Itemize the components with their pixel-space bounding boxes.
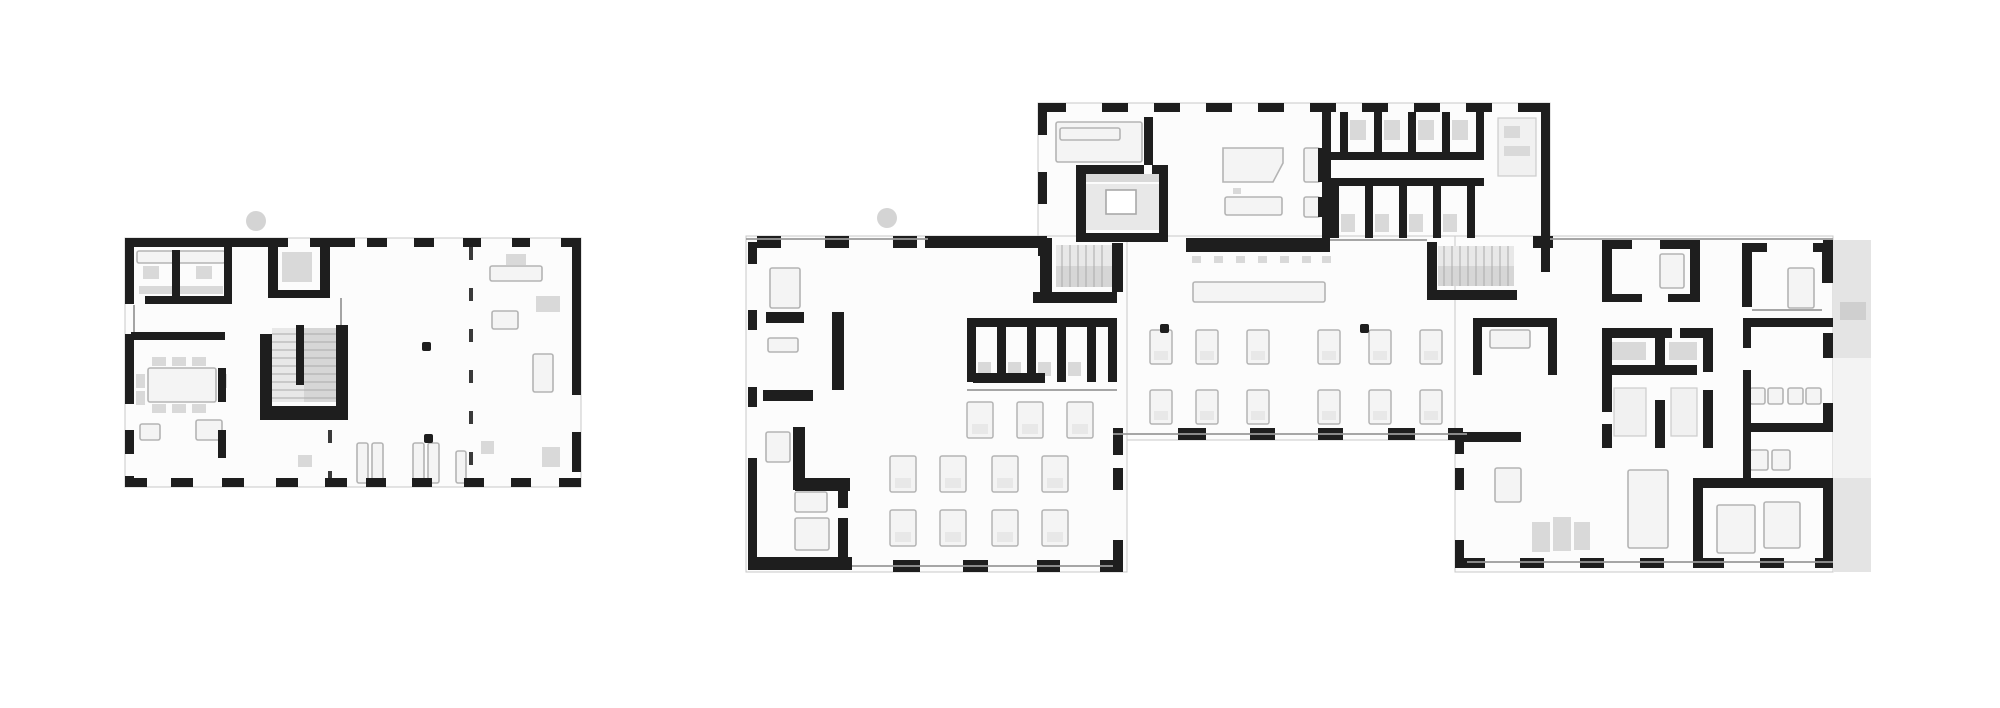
wall-segment	[412, 478, 432, 487]
outline-furniture	[1788, 388, 1803, 404]
outline-furniture	[490, 266, 542, 281]
wall-segment	[1655, 400, 1665, 448]
wall-segment	[1602, 294, 1642, 302]
seat-unit-inner	[1251, 411, 1265, 420]
seat-unit-inner	[1373, 351, 1387, 360]
wall-segment	[748, 387, 757, 407]
wall-segment	[1463, 432, 1521, 442]
wall-segment	[1362, 103, 1388, 112]
wall-segment	[1466, 103, 1492, 112]
wall-segment	[1743, 370, 1751, 424]
gray-furniture	[172, 357, 186, 366]
outline-furniture	[1768, 388, 1783, 404]
tree-circle	[877, 208, 897, 228]
seat-unit-inner	[895, 532, 911, 542]
outline-furniture	[1304, 197, 1320, 217]
left-floor-plan	[125, 211, 581, 487]
seat-unit-inner	[1154, 351, 1168, 360]
wall-segment	[1655, 334, 1665, 365]
seat-unit-inner	[1424, 351, 1438, 360]
gray-furniture	[1214, 256, 1223, 263]
outline-furniture	[428, 443, 439, 483]
wall-segment	[414, 238, 434, 247]
seat-unit-inner	[1047, 478, 1063, 488]
wall-segment	[1760, 558, 1784, 568]
outline-furniture	[1660, 254, 1684, 288]
gray-furniture	[1504, 146, 1530, 156]
wall-segment	[464, 478, 484, 487]
pale-furniture	[1614, 388, 1646, 436]
wall-segment	[1520, 558, 1544, 568]
wall-segment	[1331, 186, 1339, 238]
outline-furniture	[795, 492, 827, 512]
floor-plan-canvas	[0, 0, 2000, 708]
seat-unit-inner	[1154, 411, 1168, 420]
wall-segment	[1743, 243, 1767, 252]
wall-segment	[1310, 103, 1336, 112]
wall-segment	[1433, 186, 1441, 238]
wall-segment	[1365, 186, 1373, 238]
column-dot	[1160, 324, 1169, 333]
terrace	[1840, 302, 1866, 320]
wall-segment	[572, 241, 581, 395]
gray-furniture	[172, 404, 186, 413]
wall-segment	[310, 238, 355, 247]
wall-segment	[1533, 236, 1553, 248]
column-dot	[1360, 324, 1369, 333]
wall-segment	[1331, 178, 1484, 186]
floor-slab	[1127, 236, 1463, 440]
gray-furniture	[1350, 120, 1366, 140]
gray-furniture	[143, 266, 159, 279]
wall-segment	[511, 478, 531, 487]
column-dot	[424, 434, 433, 443]
wall-segment	[1076, 233, 1168, 242]
wall-segment	[757, 236, 781, 248]
wall-segment	[1473, 318, 1482, 375]
terrace	[1833, 358, 1871, 478]
gray-furniture	[1532, 522, 1550, 552]
seat-unit-inner	[1373, 411, 1387, 420]
gray-furniture	[1302, 256, 1311, 263]
outline-furniture	[770, 268, 800, 308]
seat-unit-inner	[1072, 424, 1088, 434]
wall-segment	[367, 238, 387, 247]
wall-segment	[276, 478, 298, 487]
gray-furniture	[152, 357, 166, 366]
wall-segment	[1152, 165, 1168, 174]
outline-furniture	[766, 432, 790, 462]
outline-furniture	[1495, 468, 1521, 502]
wall-segment	[1108, 318, 1117, 382]
wall-segment	[131, 332, 225, 340]
wall-segment	[1700, 558, 1724, 568]
white-furniture	[1106, 190, 1136, 214]
seat-unit-inner	[1322, 411, 1336, 420]
gray-furniture	[1504, 126, 1520, 138]
outline-furniture	[372, 443, 383, 483]
outline-furniture	[140, 424, 160, 440]
wall-segment	[1399, 186, 1407, 238]
wall-segment	[967, 318, 976, 382]
outline-furniture	[1750, 450, 1768, 470]
wall-segment	[1823, 403, 1833, 427]
outline-furniture	[1193, 282, 1325, 302]
wall-segment	[825, 236, 849, 248]
wall-segment	[320, 240, 330, 298]
wall-segment	[973, 373, 1045, 383]
wall-segment	[1548, 318, 1557, 375]
wall-segment	[1743, 432, 1751, 478]
gray-furniture	[1452, 120, 1468, 140]
wall-segment	[1693, 478, 1833, 488]
stair-lane	[304, 328, 336, 402]
gray-furniture	[1375, 214, 1389, 232]
wall-segment	[997, 318, 1006, 382]
outline-furniture	[1060, 128, 1120, 140]
outline-furniture	[1225, 197, 1282, 215]
wall-segment	[1258, 103, 1284, 112]
wall-segment	[1823, 240, 1833, 278]
wall-segment	[125, 430, 134, 454]
wall-segment	[838, 478, 848, 508]
outline-furniture	[413, 443, 424, 483]
gray-furniture	[1280, 256, 1289, 263]
wall-segment	[1038, 172, 1047, 204]
wall-segment	[838, 518, 848, 568]
wall-segment	[1318, 197, 1327, 217]
gray-furniture	[136, 391, 145, 405]
outline-furniture	[768, 338, 798, 352]
gray-furniture	[192, 404, 206, 413]
wall-segment	[1112, 243, 1123, 292]
wall-segment	[268, 240, 278, 298]
seat-unit-inner	[997, 478, 1013, 488]
wall-segment	[171, 478, 193, 487]
wall-segment	[1743, 318, 1833, 327]
wall-segment	[145, 296, 232, 304]
stair-lane	[1056, 245, 1112, 266]
wall-segment	[1076, 165, 1144, 174]
gray-furniture	[481, 441, 494, 454]
wall-segment	[1154, 103, 1180, 112]
wall-segment	[559, 478, 581, 487]
wall-segment	[1113, 540, 1123, 570]
gray-furniture	[1341, 214, 1355, 232]
wall-segment	[325, 478, 347, 487]
gray-furniture	[1236, 256, 1245, 263]
wall-segment	[1640, 558, 1664, 568]
outline-furniture	[492, 311, 518, 329]
wall-segment	[1113, 468, 1123, 490]
wall-segment	[1113, 428, 1123, 455]
wall-segment	[1408, 112, 1416, 156]
wall-segment	[1467, 186, 1475, 238]
wall-segment	[1427, 290, 1517, 300]
seat-unit-inner	[1251, 351, 1265, 360]
terrace	[1833, 478, 1871, 572]
wall-segment	[925, 236, 1045, 248]
wall-segment	[1455, 432, 1464, 454]
outline-furniture	[1628, 470, 1668, 548]
gray-furniture	[506, 254, 526, 265]
wall-segment	[1374, 112, 1382, 156]
wall-segment	[224, 240, 232, 304]
wall-segment	[763, 390, 813, 401]
wall-segment	[172, 250, 180, 298]
tree-circle	[246, 211, 266, 231]
gray-furniture	[282, 252, 312, 282]
wall-segment	[125, 238, 134, 304]
wall-segment	[1703, 390, 1713, 448]
gray-furniture	[1553, 517, 1571, 551]
gray-furniture	[1192, 256, 1201, 263]
wall-segment	[366, 478, 386, 487]
seat-unit-inner	[972, 424, 988, 434]
wall-segment	[1442, 112, 1450, 156]
wall-segment	[512, 238, 530, 247]
wall-segment	[1602, 240, 1632, 249]
wall-segment	[1823, 333, 1833, 358]
wall-segment	[1693, 478, 1703, 568]
floor-plans-drawing	[0, 0, 2000, 708]
wall-segment	[1743, 423, 1833, 432]
wall-segment	[1823, 482, 1833, 568]
wall-segment	[1455, 468, 1464, 490]
pale-furniture	[1671, 388, 1697, 436]
outline-furniture	[795, 518, 829, 550]
column-dot	[422, 342, 431, 351]
outline-furniture	[1304, 148, 1320, 182]
wall-segment	[1703, 328, 1713, 372]
outline-furniture	[1717, 505, 1755, 553]
seat-unit-inner	[997, 532, 1013, 542]
gray-furniture	[1409, 214, 1423, 232]
wall-segment	[125, 238, 288, 247]
wall-segment	[1476, 112, 1484, 156]
wall-segment	[1742, 243, 1752, 307]
seat-unit-inner	[1200, 411, 1214, 420]
outline-furniture	[1806, 388, 1821, 404]
wall-segment	[125, 334, 134, 404]
seat-unit-inner	[895, 478, 911, 488]
gray-furniture	[1443, 214, 1457, 232]
wall-segment	[893, 236, 917, 248]
seat-unit-inner	[1047, 532, 1063, 542]
wall-segment	[1690, 240, 1700, 302]
gray-furniture	[1086, 174, 1160, 182]
wall-segment	[296, 325, 304, 385]
seat-unit-inner	[1424, 411, 1438, 420]
outline-furniture	[1750, 388, 1765, 404]
wall-segment	[748, 310, 757, 330]
wall-segment	[1087, 318, 1096, 382]
gray-furniture	[1233, 188, 1241, 194]
outline-furniture	[1788, 268, 1814, 308]
wall-segment	[748, 242, 757, 264]
wall-segment	[1159, 174, 1168, 242]
wall-segment	[260, 406, 348, 420]
wall-segment	[1331, 152, 1484, 160]
wall-segment	[766, 312, 804, 323]
wall-segment	[748, 458, 757, 570]
wall-segment	[572, 432, 581, 472]
wall-segment	[336, 325, 348, 420]
wall-segment	[1463, 558, 1485, 568]
outline-furniture	[357, 443, 368, 483]
right-floor-plan	[746, 103, 1871, 572]
gray-furniture	[298, 455, 312, 467]
outline-furniture	[137, 251, 225, 263]
stair-lane	[1056, 266, 1112, 287]
outline-furniture	[148, 368, 216, 402]
wall-segment	[1414, 103, 1440, 112]
wall-segment	[1038, 103, 1047, 135]
seat-unit-inner	[945, 478, 961, 488]
wall-segment	[1610, 365, 1697, 375]
seat-unit-inner	[1322, 351, 1336, 360]
wall-segment	[1668, 294, 1700, 302]
grand-furniture	[1223, 148, 1283, 182]
wall-segment	[1076, 165, 1086, 242]
gray-furniture	[1612, 342, 1646, 360]
gray-furniture	[192, 357, 206, 366]
gray-furniture	[1258, 256, 1267, 263]
wall-segment	[1455, 540, 1464, 568]
gray-furniture	[1669, 342, 1697, 360]
wall-segment	[463, 238, 481, 247]
wall-segment	[757, 557, 852, 570]
gray-furniture	[536, 296, 560, 312]
seat-unit-inner	[1022, 424, 1038, 434]
outline-furniture	[1764, 502, 1800, 548]
gray-furniture	[136, 374, 145, 388]
wall-segment	[271, 290, 323, 298]
outline-furniture	[1772, 450, 1790, 470]
seat-unit-inner	[945, 532, 961, 542]
wall-segment	[1102, 103, 1128, 112]
gray-furniture	[1384, 120, 1400, 140]
gray-furniture	[1574, 522, 1590, 550]
wall-segment	[1206, 103, 1232, 112]
wall-segment	[1027, 318, 1036, 382]
wall-segment	[1473, 318, 1557, 327]
wall-segment	[218, 430, 226, 458]
wall-segment	[125, 478, 147, 487]
wall-segment	[832, 312, 844, 390]
outline-furniture	[1490, 330, 1530, 348]
gray-furniture	[1068, 362, 1081, 376]
wall-segment	[1602, 424, 1612, 448]
wall-segment	[1318, 148, 1327, 182]
gray-furniture	[196, 266, 212, 279]
terrace	[1833, 240, 1871, 358]
gray-furniture	[1322, 256, 1331, 263]
wall-segment	[1144, 117, 1153, 165]
wall-segment	[1340, 112, 1348, 156]
wall-segment	[1186, 238, 1330, 252]
outline-furniture	[533, 354, 553, 392]
wall-segment	[1033, 292, 1117, 303]
gray-furniture	[1418, 120, 1434, 140]
gray-furniture	[152, 404, 166, 413]
gray-furniture	[542, 447, 560, 467]
wall-segment	[222, 478, 244, 487]
wall-segment	[1580, 558, 1604, 568]
wall-segment	[218, 368, 226, 402]
seat-unit-inner	[1200, 351, 1214, 360]
wall-segment	[1057, 318, 1066, 382]
wall-segment	[1602, 240, 1612, 302]
gray-furniture	[139, 286, 223, 294]
